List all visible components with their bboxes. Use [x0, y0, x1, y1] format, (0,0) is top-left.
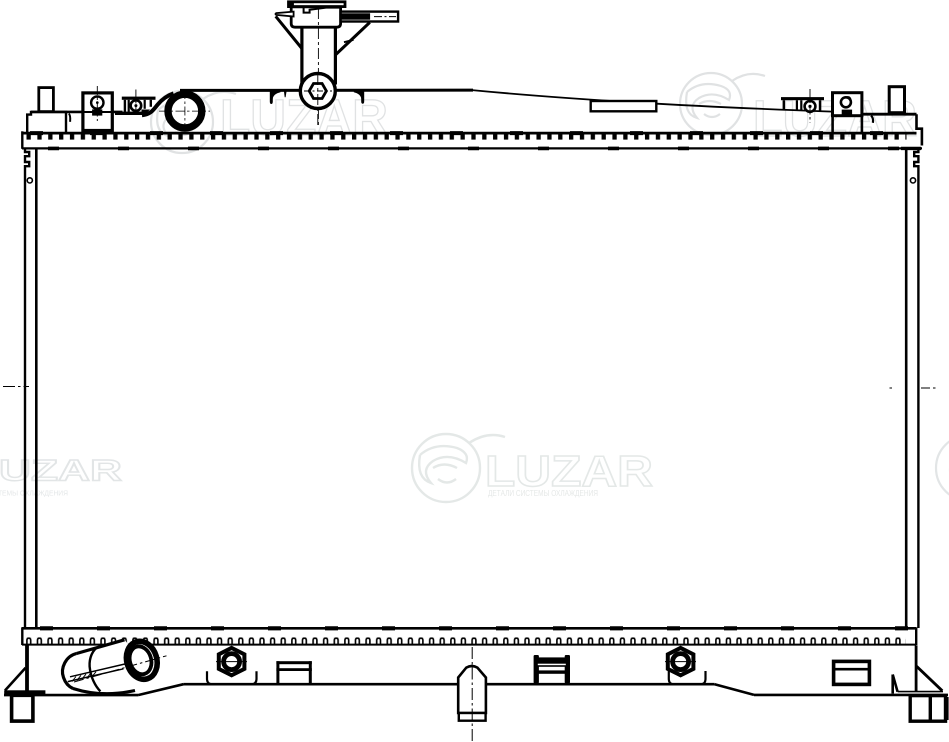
svg-text:ДЕТАЛИ СИСТЕМЫ ОХЛАЖДЕНИЯ: ДЕТАЛИ СИСТЕМЫ ОХЛАЖДЕНИЯ [0, 489, 68, 498]
svg-text:ДЕТАЛИ СИСТЕМЫ ОХЛАЖДЕНИЯ: ДЕТАЛИ СИСТЕМЫ ОХЛАЖДЕНИЯ [488, 489, 598, 498]
svg-text:LUZAR: LUZAR [0, 455, 122, 488]
